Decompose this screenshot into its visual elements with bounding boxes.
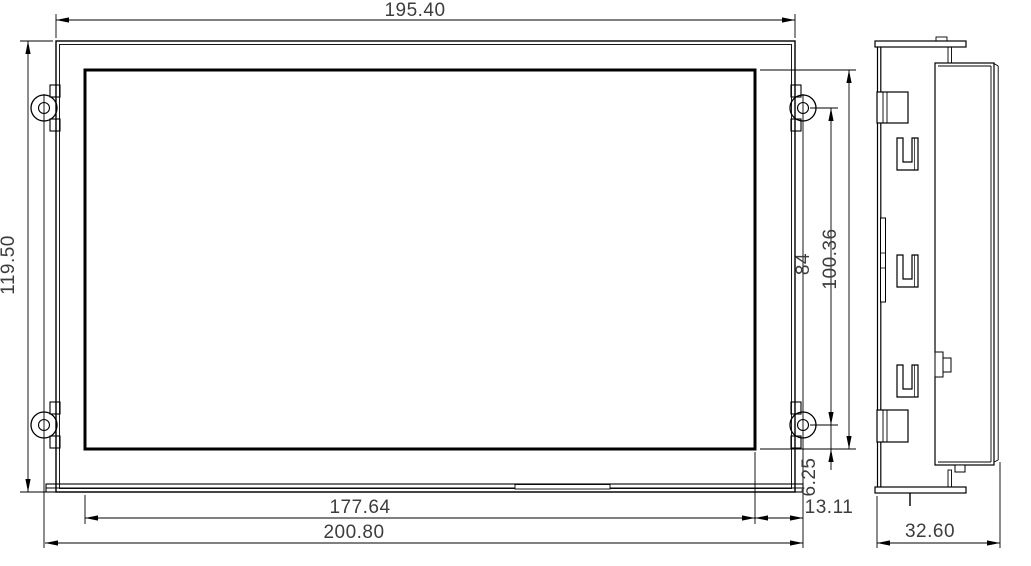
technical-drawing: 195.40 119.50 84 100.36 6.25 177.64 13.1… [0, 0, 1031, 566]
dimension-lines [28, 20, 1000, 543]
side-strip [881, 218, 886, 302]
drawing-page: 195.40 119.50 84 100.36 6.25 177.64 13.1… [0, 0, 1031, 566]
dimension-hole-offset-right: 13.11 [805, 497, 854, 518]
side-view [875, 37, 998, 506]
mounting-lugs [31, 95, 816, 438]
mounting-tabs [50, 85, 801, 448]
dimensions: 195.40 119.50 84 100.36 6.25 177.64 13.1… [0, 0, 1000, 546]
side-block [877, 92, 908, 123]
rear-tab [943, 358, 951, 372]
rear-bottom-notch [955, 465, 965, 472]
side-block [877, 410, 908, 442]
top-flange [875, 41, 966, 47]
active-display-area [85, 70, 755, 449]
extension-lines [20, 14, 1000, 548]
connector-tab [515, 485, 610, 490]
bezel-inner-line [60, 45, 792, 489]
dimension-hole-offset-bottom: 6.25 [799, 458, 820, 497]
bottom-flange [875, 487, 966, 493]
top-hook [948, 47, 952, 63]
dimension-hole-spacing: 84 [793, 253, 814, 275]
dimension-overall-width: 200.80 [323, 522, 384, 543]
rear-notch [935, 352, 943, 377]
dimension-labels: 195.40 119.50 84 100.36 6.25 177.64 13.1… [0, 0, 955, 543]
dimension-active-width: 177.64 [329, 497, 390, 518]
spring-clips [897, 138, 918, 397]
dimension-bezel-width: 195.40 [384, 0, 445, 21]
bottom-hook [948, 470, 952, 487]
front-view [31, 41, 816, 492]
dimension-bezel-height: 119.50 [0, 235, 19, 295]
dimension-arrows [25, 17, 1000, 545]
dimension-depth: 32.60 [905, 521, 955, 542]
rear-body [935, 63, 994, 465]
bezel-outline [56, 41, 795, 492]
dimension-active-height: 100.36 [820, 228, 841, 289]
